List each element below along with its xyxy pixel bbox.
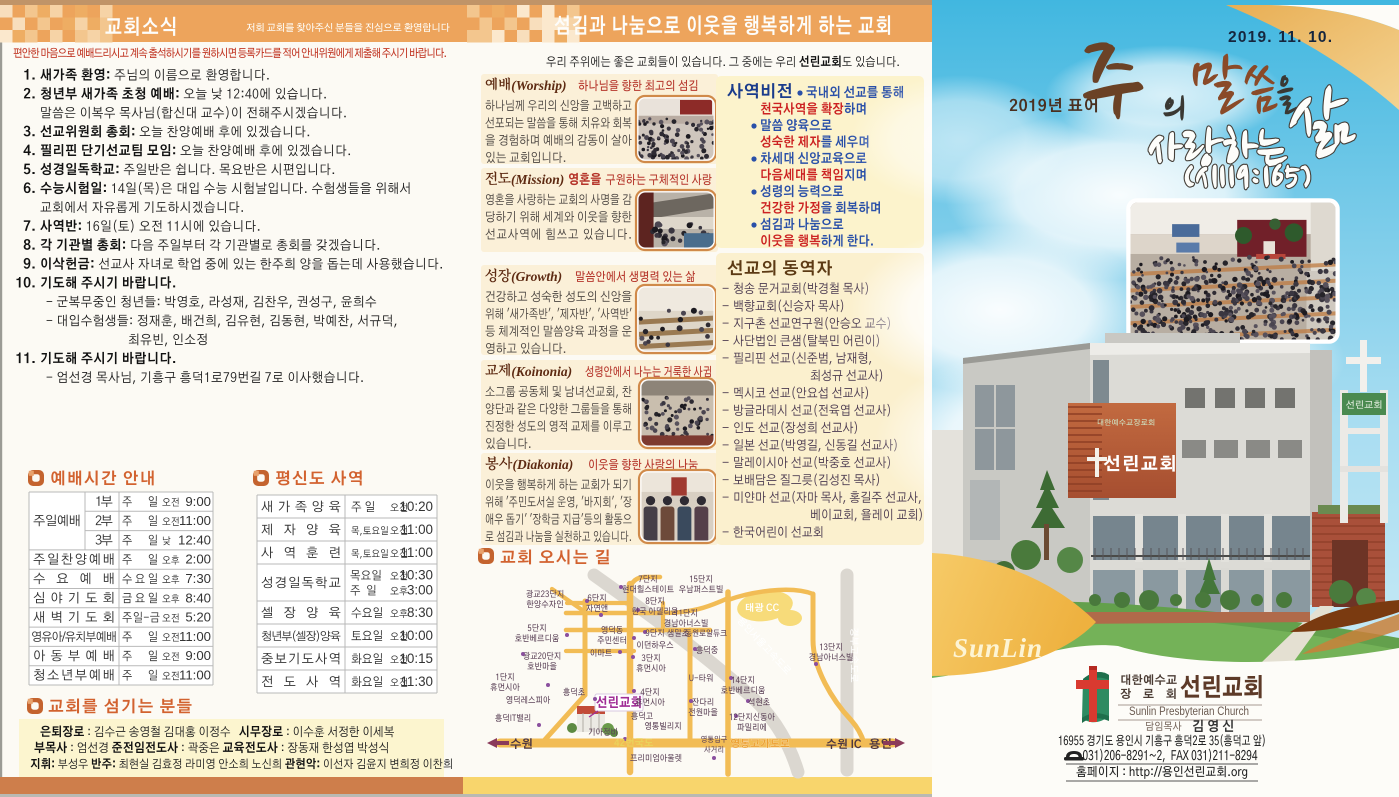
svg-text:(Koinonia): (Koinonia) [511,364,572,379]
svg-text:(Worship): (Worship) [511,78,566,93]
svg-text:11:00: 11:00 [400,522,433,537]
svg-text:10:15: 10:15 [399,651,433,666]
svg-text:11:00: 11:00 [179,629,211,644]
svg-text:Sunlin Presbyterian Church: Sunlin Presbyterian Church [1129,706,1249,718]
svg-text:3:00: 3:00 [407,583,433,598]
svg-text:11:00: 11:00 [179,668,211,683]
svg-text:12:40: 12:40 [178,532,211,547]
svg-text:(Diakonia): (Diakonia) [513,457,574,472]
svg-text:11:00: 11:00 [179,513,211,528]
svg-text:11:00: 11:00 [400,545,433,560]
svg-text:8:40: 8:40 [185,590,211,605]
svg-text:SunLin: SunLin [953,633,1043,663]
svg-text:9:00: 9:00 [185,648,211,663]
svg-text:10:00: 10:00 [399,628,433,643]
svg-text:2019. 11. 10.: 2019. 11. 10. [1228,29,1333,46]
svg-text:5:20: 5:20 [185,610,211,625]
svg-text:(Growth): (Growth) [511,269,562,284]
svg-text:10:30: 10:30 [399,568,433,583]
svg-text:11:30: 11:30 [400,674,433,689]
svg-text:7:30: 7:30 [185,571,211,586]
svg-text:8:30: 8:30 [407,605,433,620]
svg-text:10:20: 10:20 [399,499,433,514]
svg-text:2:00: 2:00 [185,552,211,567]
svg-text:9:00: 9:00 [185,494,211,509]
svg-text:(Mission): (Mission) [511,172,564,187]
